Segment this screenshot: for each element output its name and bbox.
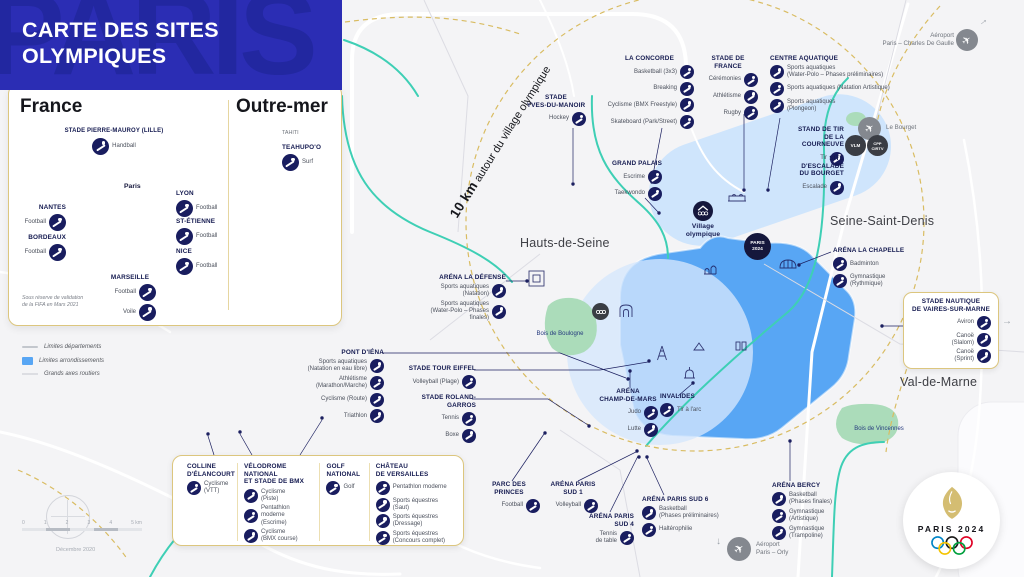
- football-icon: [49, 214, 66, 231]
- wrestling-icon: [644, 423, 658, 437]
- map-date: Décembre 2020: [56, 547, 95, 553]
- venue-bordeaux: BORDEAUX Football: [16, 234, 66, 261]
- track-cycling-icon: [244, 489, 258, 503]
- venue-pont-d-iena: PONT D'IÉNA Sports aquatiques (Natation …: [294, 349, 384, 423]
- venue-stade-pierre-mauroy: STADE PIERRE-MAUROY (LILLE) Handball: [58, 128, 170, 155]
- venue-teahupoo: TEAHUPO'O Surf: [282, 144, 332, 171]
- venue-arena-bercy: ARÉNA BERCY Basketball (Phases finales) …: [772, 482, 848, 540]
- venue-chateau-versailles: CHÂTEAU DE VERSAILLES Pentathlon moderne…: [369, 463, 459, 541]
- handball-icon: [92, 138, 109, 155]
- triathlon-icon: [370, 409, 384, 423]
- judo-icon: [644, 406, 658, 420]
- venue-arena-la-chapelle: ARÉNA LA CHAPELLE Badminton Gymnastique …: [833, 247, 907, 288]
- le-bourget-label: Le Bourget: [886, 124, 930, 132]
- venue-stade-nautique-vaires: STADE NAUTIQUE DE VAIRES-SUR-MARNE Aviro…: [903, 292, 999, 369]
- legend-item: Limites départements: [22, 344, 104, 350]
- la-defense-arch-icon: [529, 271, 544, 286]
- scale-segments: [22, 528, 142, 531]
- golf-icon: [326, 481, 340, 495]
- modern-pentathlon-icon: [244, 509, 258, 523]
- rings-glyph: [596, 309, 606, 315]
- archery-icon: [660, 403, 674, 417]
- scale-ticks: 012345 km: [22, 520, 142, 526]
- media-village-badge: VLM: [845, 135, 866, 156]
- football-icon: [526, 499, 540, 513]
- venue-site-escalade-bourget: SITE D'ESCALADE DU BOURGET Escalade: [788, 155, 844, 195]
- venue-st-etienne: ST-ÉTIENNE Football: [176, 218, 232, 245]
- panel-separator: [228, 100, 229, 310]
- venue-velodrome-national: VÉLODROME NATIONAL ET STADE DE BMX Cycli…: [237, 463, 319, 541]
- open-water-swimming-icon: [370, 359, 384, 373]
- football-icon: [49, 244, 66, 261]
- venue-lyon: LYON Football: [176, 190, 228, 217]
- fifa-footnote: Sous réserve de validation de la FIFA en…: [22, 295, 83, 309]
- venue-grand-palais: GRAND PALAIS Escrime Taekwondo: [602, 160, 662, 201]
- bmx-racing-icon: [244, 529, 258, 543]
- venue-arena-paris-sud-4: ARÉNA PARIS SUD 4 Tennis de table: [574, 513, 634, 545]
- orly-airport-label: Aéroport Paris – Orly: [756, 541, 810, 557]
- breaking-icon: [680, 82, 694, 96]
- diving-icon: [770, 99, 784, 113]
- sailing-icon: [139, 304, 156, 321]
- swimming-icon: [492, 284, 506, 298]
- modern-pentathlon-icon: [376, 481, 390, 495]
- athletics-icon: [744, 90, 758, 104]
- venue-stade-de-france: STADE DE FRANCE Cérémonies Athlétisme Ru…: [698, 55, 758, 120]
- orly-arrow-icon: ↓: [716, 536, 721, 547]
- skateboard-icon: [680, 115, 694, 129]
- paris-2024-hq-badge: PARIS 2024: [744, 233, 771, 260]
- fencing-icon: [648, 170, 662, 184]
- artistic-gymnastics-icon: [772, 509, 786, 523]
- venue-la-concorde: LA CONCORDE Basketball (3x3) Breaking Cy…: [574, 55, 694, 129]
- equestrian-jumping-icon: [376, 498, 390, 512]
- tahiti-label: TAHITI: [282, 130, 299, 137]
- press-centre-badge: CPP CIRTV: [867, 135, 888, 156]
- saint-quentin-venues-box: COLLINE D'ÉLANCOURT Cyclisme (VTT) VÉLOD…: [172, 455, 464, 546]
- compass-rose: [46, 495, 90, 539]
- olympic-village-icon: [693, 201, 713, 221]
- venue-stade-tour-eiffel: STADE TOUR EIFFEL Volleyball (Plage): [398, 365, 476, 389]
- badminton-icon: [833, 257, 847, 271]
- venue-centre-aquatique: CENTRE AQUATIQUE Sports aquatiques (Wate…: [770, 55, 918, 113]
- trampoline-icon: [772, 526, 786, 540]
- venue-arena-paris-sud-6: ARÉNA PARIS SUD 6 Basketball (Phases pré…: [642, 496, 720, 537]
- artistic-swimming-icon: [770, 82, 784, 96]
- canoe-sprint-icon: [977, 349, 991, 363]
- venue-invalides: INVALIDES Tir à l'arc: [660, 393, 718, 417]
- venue-parc-des-princes: PARC DES PRINCES Football: [478, 481, 540, 513]
- rugby-icon: [744, 106, 758, 120]
- tennis-icon: [462, 412, 476, 426]
- flame-emblem-icon: [936, 486, 968, 522]
- bmx-freestyle-icon: [680, 98, 694, 112]
- venue-nantes: NANTES Football: [20, 204, 66, 231]
- cdg-airport-label: Aéroport Paris – Charles De Gaulle: [868, 32, 954, 48]
- basketball-icon: [642, 506, 656, 520]
- venue-nice: NICE Football: [176, 248, 228, 275]
- region-val-de-marne: Val-de-Marne: [900, 375, 977, 389]
- scale-bar: 012345 km: [22, 520, 142, 531]
- outre-mer-heading: Outre-mer: [236, 96, 328, 118]
- equestrian-dressage-icon: [376, 514, 390, 528]
- bois-de-boulogne-shape: [545, 298, 597, 355]
- paris-label: Paris: [124, 183, 141, 190]
- rowing-icon: [977, 316, 991, 330]
- paris-2024-logo: PARIS 2024: [903, 472, 1000, 569]
- venue-village-olympique: Village olympique: [676, 201, 730, 239]
- climbing-icon: [830, 181, 844, 195]
- table-tennis-icon: [620, 531, 634, 545]
- bois-de-vincennes-shape: [836, 404, 898, 444]
- football-icon: [176, 200, 193, 217]
- marathon-icon: [370, 376, 384, 390]
- olympic-rings-icon: [930, 535, 974, 556]
- road-cycling-icon: [370, 393, 384, 407]
- region-hauts-de-seine: Hauts-de-Seine: [520, 236, 610, 250]
- ceremonies-icon: [744, 73, 758, 87]
- venue-marseille: MARSEILLE Football Voile: [104, 274, 156, 321]
- france-heading: France: [20, 96, 82, 118]
- airplane-icon: ✈: [727, 537, 751, 561]
- legend-item: Grands axes routiers: [22, 371, 104, 377]
- basketball-icon: [772, 492, 786, 506]
- venue-stade-roland-garros: STADE ROLAND-GARROS Tennis Boxe: [396, 394, 476, 443]
- legend: Limites départements Limites arrondissem…: [22, 344, 104, 384]
- venue-golf-national: GOLF NATIONAL Golf: [319, 463, 368, 541]
- logo-wordmark: PARIS 2024: [918, 524, 986, 534]
- vaires-arrow-icon: →: [1002, 316, 1012, 327]
- venue-arena-champ-de-mars: ARÉNA CHAMP-DE-MARS Judo Lutte: [598, 388, 658, 437]
- football-icon: [176, 258, 193, 275]
- taekwondo-icon: [648, 187, 662, 201]
- department-line-swatch: [22, 346, 38, 349]
- arrondissement-swatch: [22, 357, 33, 365]
- water-polo-icon: [492, 305, 506, 319]
- boxing-icon: [462, 429, 476, 443]
- basketball-3x3-icon: [680, 65, 694, 79]
- weightlifting-icon: [642, 523, 656, 537]
- header: PARIS CARTE DES SITES OLYMPIQUES: [0, 0, 342, 90]
- olympic-sites-map: PARIS CARTE DES SITES OLYMPIQUES France …: [0, 0, 1024, 577]
- dark-badge: [592, 303, 609, 320]
- bois-de-boulogne-label: Bois de Boulogne: [536, 331, 584, 338]
- football-icon: [139, 284, 156, 301]
- region-seine-saint-denis: Seine-Saint-Denis: [830, 214, 934, 228]
- volleyball-icon: [584, 499, 598, 513]
- venue-arena-paris-sud-1: ARÉNA PARIS SUD 1 Volleyball: [548, 481, 598, 513]
- football-icon: [176, 228, 193, 245]
- legend-item: Limites arrondissements: [22, 357, 104, 365]
- venue-arena-la-defense: ARÉNA LA DÉFENSE Sports aquatiques (Nata…: [418, 274, 506, 322]
- bois-de-vincennes-label: Bois de Vincennes: [850, 426, 908, 433]
- water-polo-icon: [770, 65, 784, 79]
- road-line-swatch: [22, 373, 38, 374]
- rhythmic-gymnastics-icon: [833, 274, 847, 288]
- venue-colline-elancourt: COLLINE D'ÉLANCOURT Cyclisme (VTT): [181, 463, 237, 541]
- canoe-slalom-icon: [977, 333, 991, 347]
- airplane-icon: ✈: [956, 29, 978, 51]
- mountain-bike-icon: [187, 481, 201, 495]
- equestrian-eventing-icon: [376, 531, 390, 545]
- surf-icon: [282, 154, 299, 171]
- page-title: CARTE DES SITES OLYMPIQUES: [22, 17, 219, 69]
- beach-volleyball-icon: [462, 375, 476, 389]
